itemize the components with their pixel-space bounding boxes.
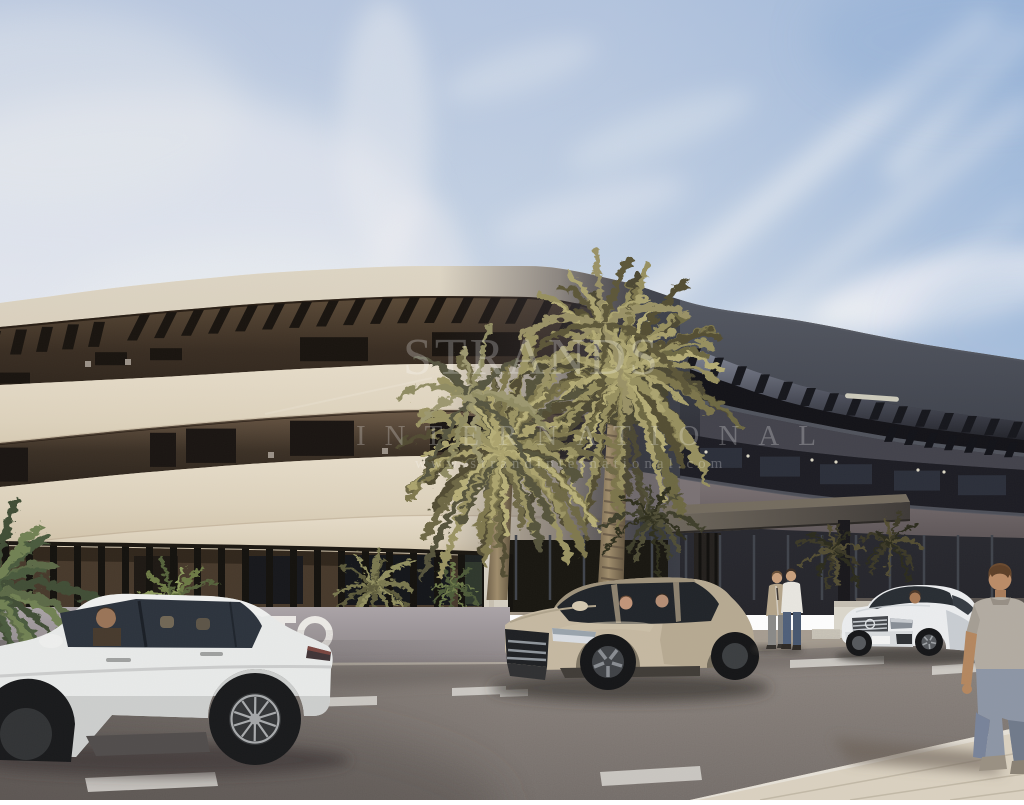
svg-text:www.strandinternational.com: www.strandinternational.com — [415, 456, 727, 472]
svg-text:INTERNATIONAL: INTERNATIONAL — [356, 420, 835, 452]
svg-text:STRANDS: STRANDS — [403, 329, 661, 386]
